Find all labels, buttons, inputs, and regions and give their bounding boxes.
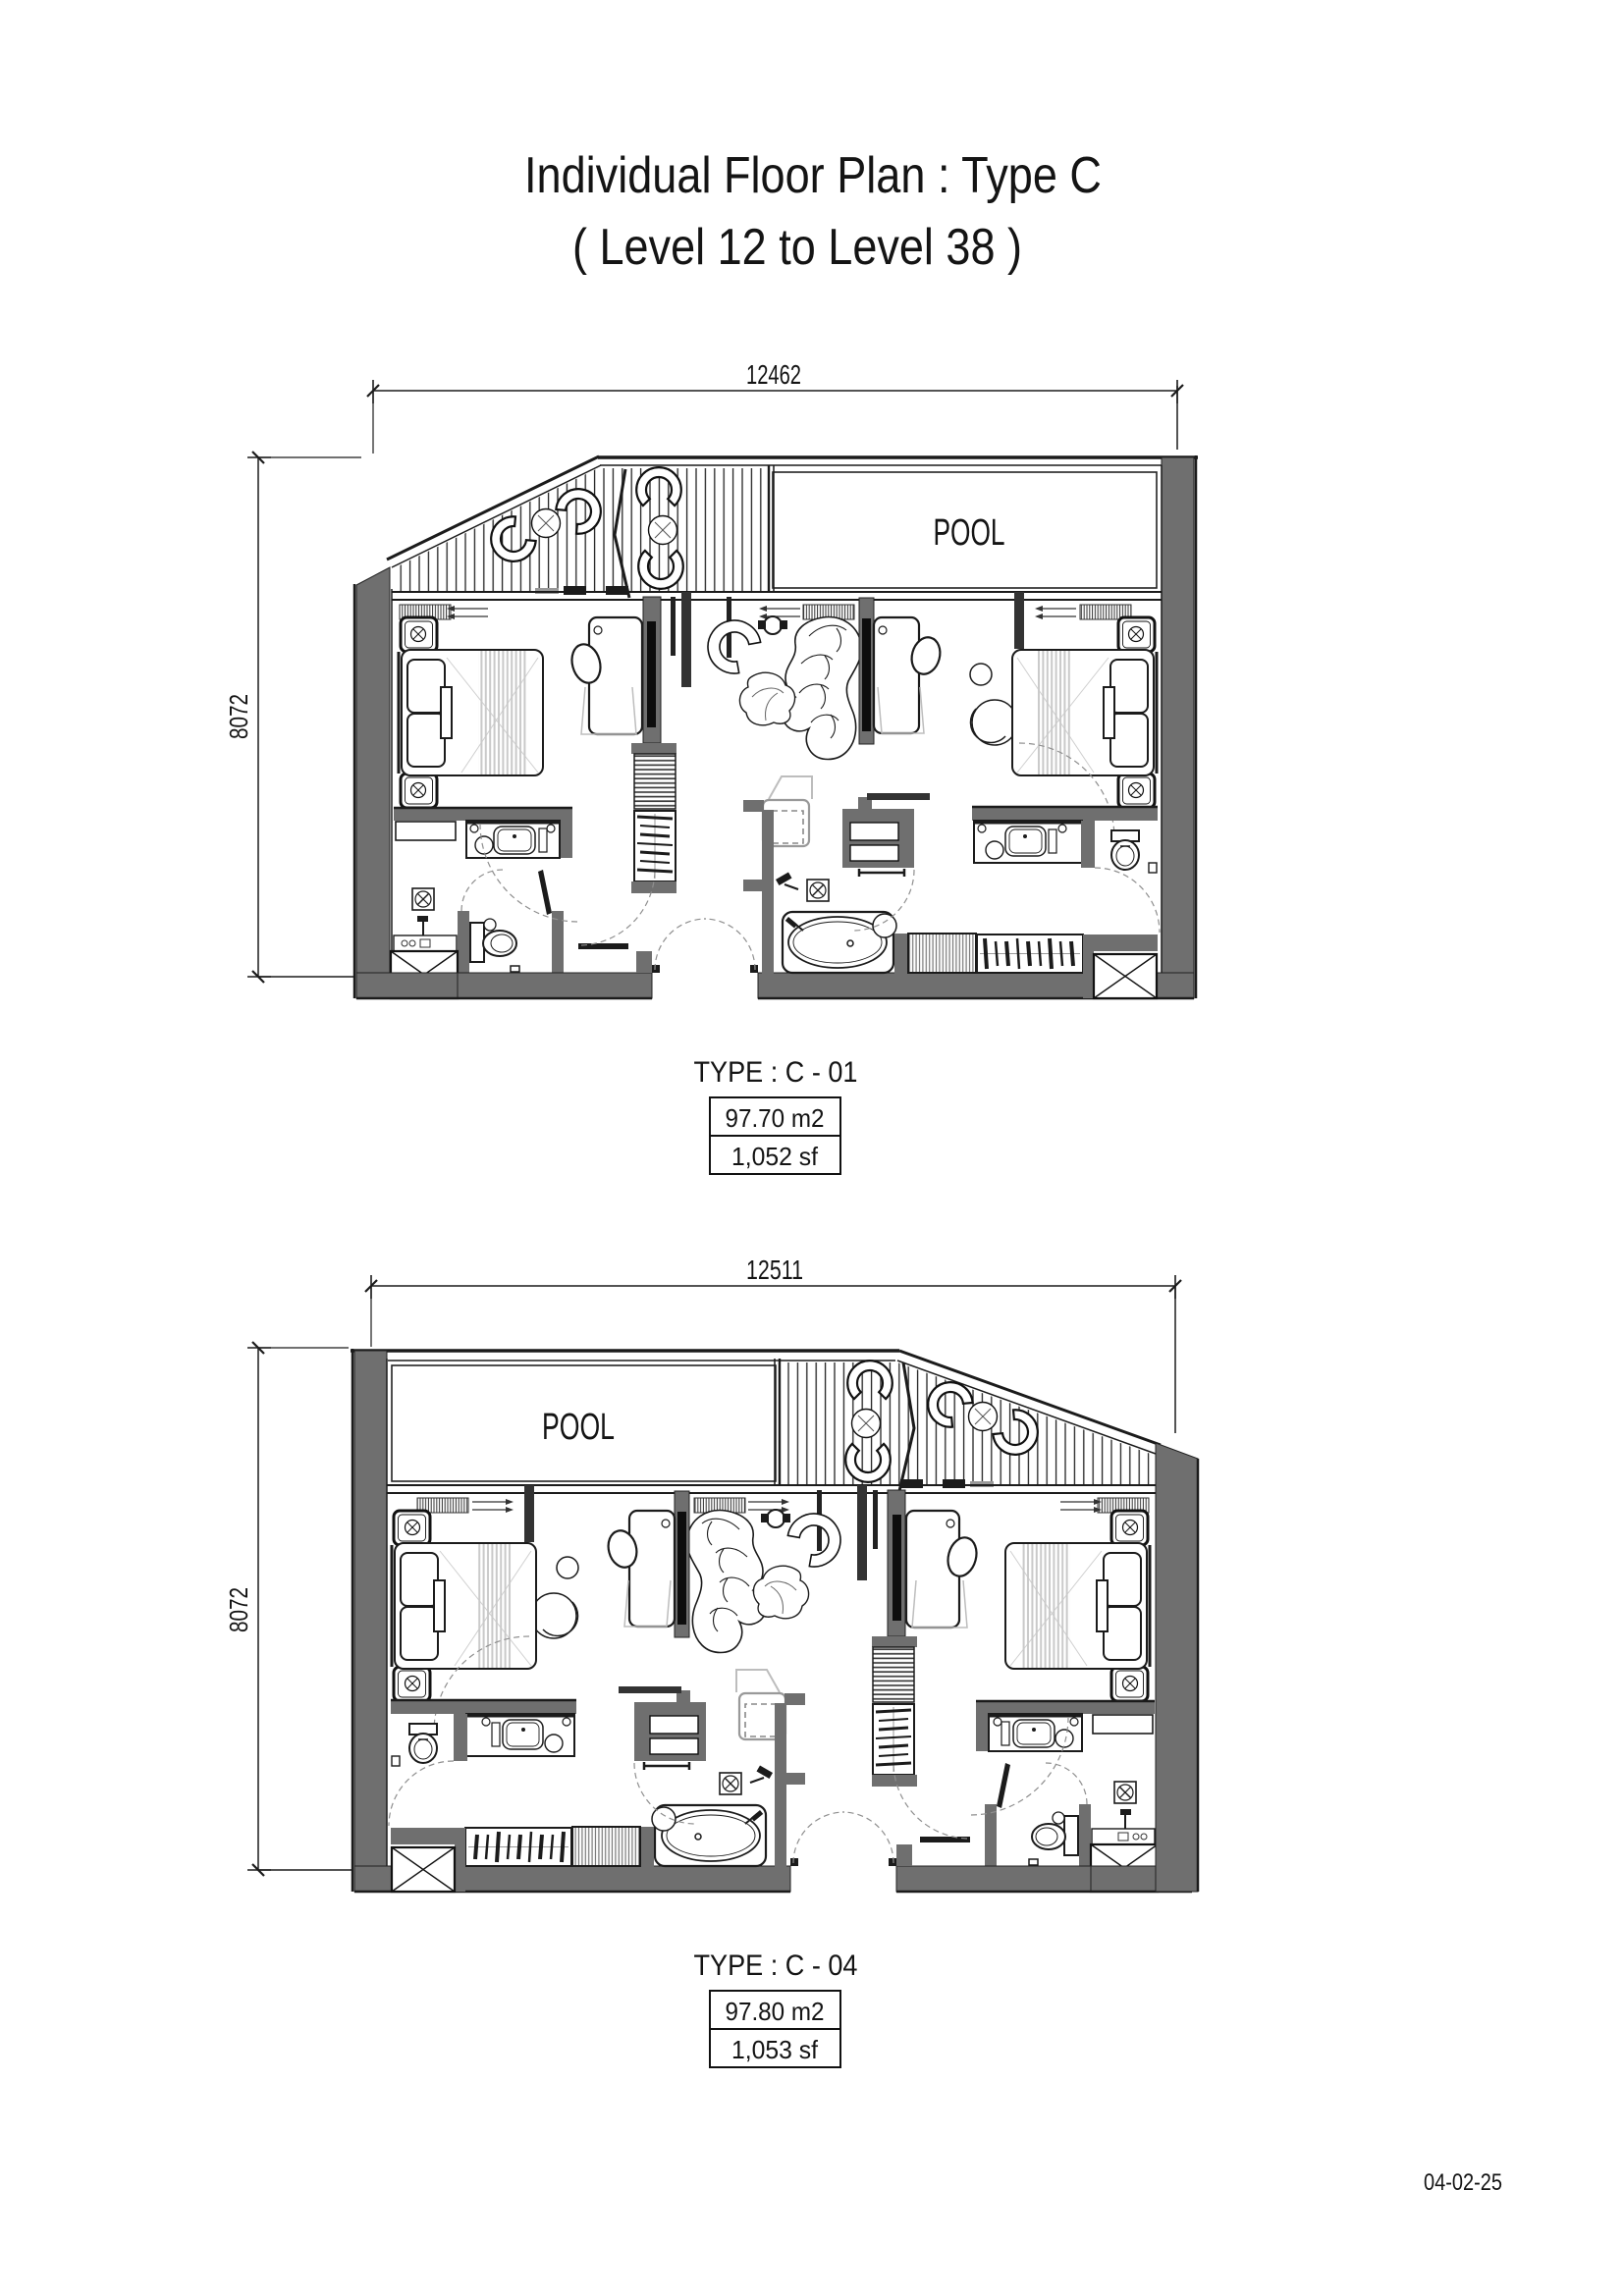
svg-text:POOL: POOL (542, 1407, 615, 1448)
svg-text:1,053 sf: 1,053 sf (731, 2035, 819, 2064)
svg-text:8072: 8072 (224, 694, 253, 739)
svg-text:( Level 12 to Level 38 ): ( Level 12 to Level 38 ) (572, 219, 1022, 276)
svg-text:12462: 12462 (746, 359, 801, 390)
svg-text:8072: 8072 (224, 1587, 253, 1632)
svg-text:97.80 m2: 97.80 m2 (726, 1997, 825, 2026)
svg-text:12511: 12511 (746, 1255, 803, 1285)
svg-text:POOL: POOL (934, 512, 1005, 554)
svg-text:Individual Floor Plan : Type C: Individual Floor Plan : Type C (524, 147, 1102, 204)
svg-text:04-02-25: 04-02-25 (1424, 2169, 1502, 2196)
svg-text:TYPE : C - 01: TYPE : C - 01 (694, 1056, 858, 1089)
svg-text:97.70 m2: 97.70 m2 (726, 1103, 825, 1133)
svg-text:TYPE : C - 04: TYPE : C - 04 (694, 1949, 858, 1982)
svg-text:1,052 sf: 1,052 sf (731, 1142, 819, 1171)
